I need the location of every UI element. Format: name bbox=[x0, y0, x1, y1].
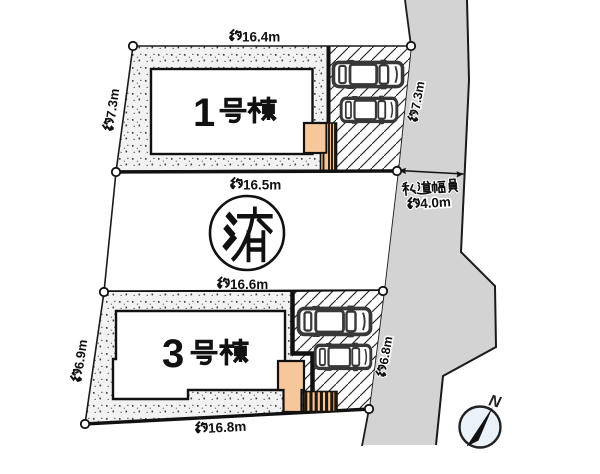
svg-text:4.0m: 4.0m bbox=[420, 194, 452, 211]
svg-text:16.4m: 16.4m bbox=[242, 30, 280, 45]
svg-text:3: 3 bbox=[162, 332, 184, 376]
svg-text:16.8m: 16.8m bbox=[208, 419, 247, 436]
svg-text:16.5m: 16.5m bbox=[243, 178, 281, 193]
svg-text:1: 1 bbox=[193, 91, 215, 135]
svg-text:16.6m: 16.6m bbox=[230, 277, 268, 292]
